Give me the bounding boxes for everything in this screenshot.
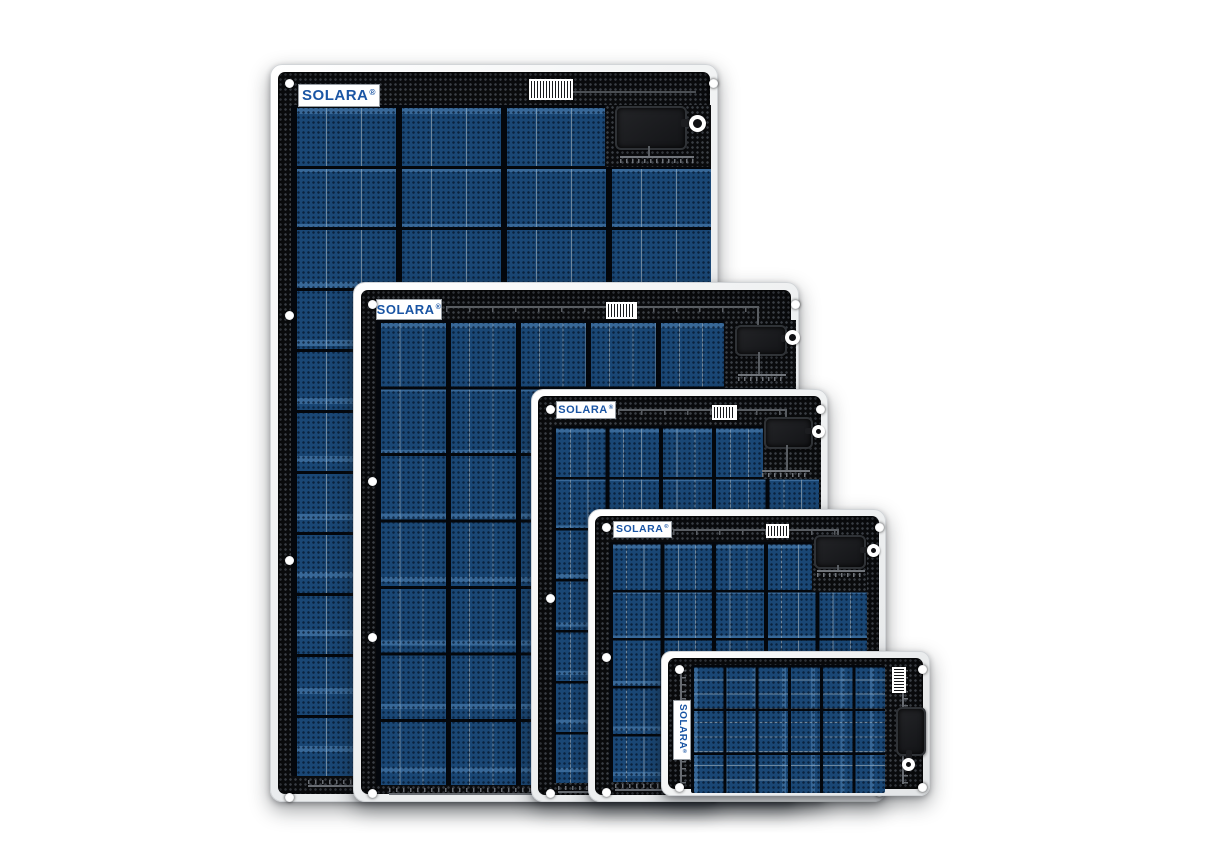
cable-loop-connector-icon: [785, 330, 800, 345]
barcode-sticker-icon: [606, 302, 637, 319]
brand-name: SOLARA: [377, 303, 435, 316]
top-bus-wire: [618, 409, 785, 415]
solar-panel-5: SOLARA®: [661, 651, 930, 796]
mounting-eyelet: [285, 556, 294, 565]
mounting-eyelet: [709, 79, 718, 88]
cable-loop-connector-icon: [689, 115, 706, 132]
mounting-eyelet: [602, 523, 611, 532]
mounting-eyelet: [546, 789, 555, 798]
registered-mark: ®: [436, 304, 442, 311]
top-bus-wire: [673, 529, 837, 535]
solara-logo: SOLARA®: [376, 299, 442, 320]
junction-box: [735, 325, 787, 356]
mounting-eyelet: [675, 665, 684, 674]
junction-box: [814, 535, 866, 569]
product-image-solara-panel-range: SOLARA® SOLARA®: [0, 0, 1214, 859]
mounting-eyelet: [285, 311, 294, 320]
junction-drop-wire: [757, 306, 759, 326]
mounting-eyelet: [918, 783, 927, 792]
junction-box: [896, 707, 926, 756]
mounting-eyelet: [546, 594, 555, 603]
barcode-sticker-icon: [529, 79, 573, 100]
brand-name: SOLARA: [677, 704, 687, 749]
panel-surface: SOLARA®: [668, 658, 923, 789]
junction-bus-bar: [817, 570, 865, 577]
solara-logo: SOLARA®: [673, 700, 691, 760]
mounting-eyelet: [675, 783, 684, 792]
mounting-eyelet: [875, 523, 884, 532]
registered-mark: ®: [369, 89, 376, 97]
junction-box: [615, 106, 687, 150]
brand-name: SOLARA: [616, 524, 663, 535]
mounting-eyelet: [918, 665, 927, 674]
registered-mark: ®: [681, 749, 687, 756]
cable-loop-connector-icon: [902, 758, 915, 771]
brand-name: SOLARA: [558, 405, 607, 416]
brand-name: SOLARA: [302, 88, 368, 103]
mounting-eyelet: [602, 788, 611, 797]
solara-logo: SOLARA®: [556, 401, 616, 419]
cable-loop-connector-icon: [812, 425, 825, 438]
top-bus-wire: [446, 306, 758, 312]
junction-drop-wire: [786, 445, 788, 470]
registered-mark: ®: [664, 525, 669, 531]
mounting-eyelet: [285, 793, 294, 802]
top-wire: [570, 91, 696, 93]
mounting-eyelet: [368, 477, 377, 486]
mounting-eyelet: [368, 789, 377, 798]
barcode-sticker-icon: [766, 524, 789, 538]
mounting-eyelet: [816, 405, 825, 414]
junction-drop-wire: [648, 146, 650, 156]
cable-loop-connector-icon: [867, 544, 880, 557]
mounting-eyelet: [368, 633, 377, 642]
junction-bus-bar: [762, 470, 810, 477]
solara-logo: SOLARA®: [298, 84, 380, 107]
solara-logo: SOLARA®: [613, 521, 672, 538]
mounting-eyelet: [602, 653, 611, 662]
mounting-eyelet: [368, 300, 377, 309]
barcode-sticker-icon: [712, 405, 737, 420]
junction-bus-bar: [738, 374, 786, 381]
junction-drop-wire: [758, 352, 760, 374]
mounting-eyelet: [285, 79, 294, 88]
junction-bus-bar: [620, 156, 694, 163]
solar-cell-grid: [691, 665, 885, 793]
registered-mark: ®: [609, 405, 614, 411]
barcode-sticker-icon: [892, 667, 906, 693]
mounting-eyelet: [791, 300, 800, 309]
mounting-eyelet: [546, 405, 555, 414]
